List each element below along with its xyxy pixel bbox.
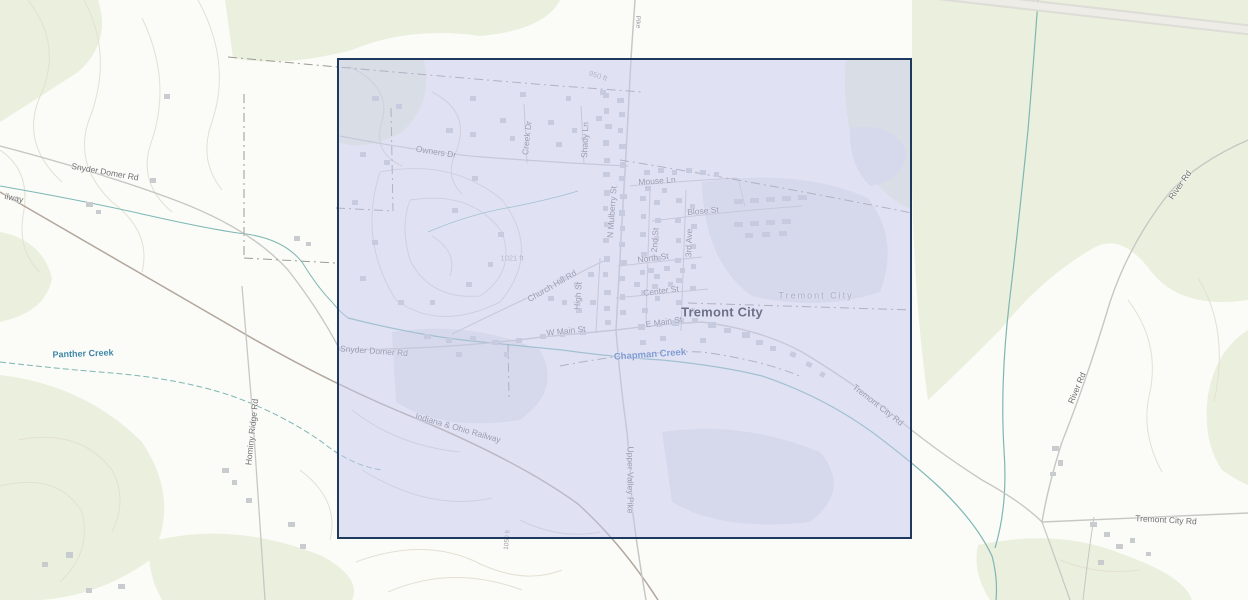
map-viewport[interactable]: Owners DrCreek DrShady Ln950 ftN Mulberr…	[0, 0, 1248, 600]
map-label-pike: Pike	[634, 16, 641, 29]
map-label-river-rd: River Rd	[1067, 371, 1088, 405]
map-label-panther-creek: Panther Creek	[52, 348, 113, 359]
map-label-snyder-domer-rd: Snyder Domer Rd	[71, 162, 139, 182]
map-label-ilway: ilway	[4, 192, 24, 204]
map-label-hominy-ridge-rd: Hominy Ridge Rd	[244, 398, 259, 465]
selection-rectangle[interactable]	[337, 58, 912, 539]
map-label-river-rd: River Rd	[1167, 169, 1193, 201]
map-label-tremont-city-rd: Tremont City Rd	[1135, 514, 1197, 526]
